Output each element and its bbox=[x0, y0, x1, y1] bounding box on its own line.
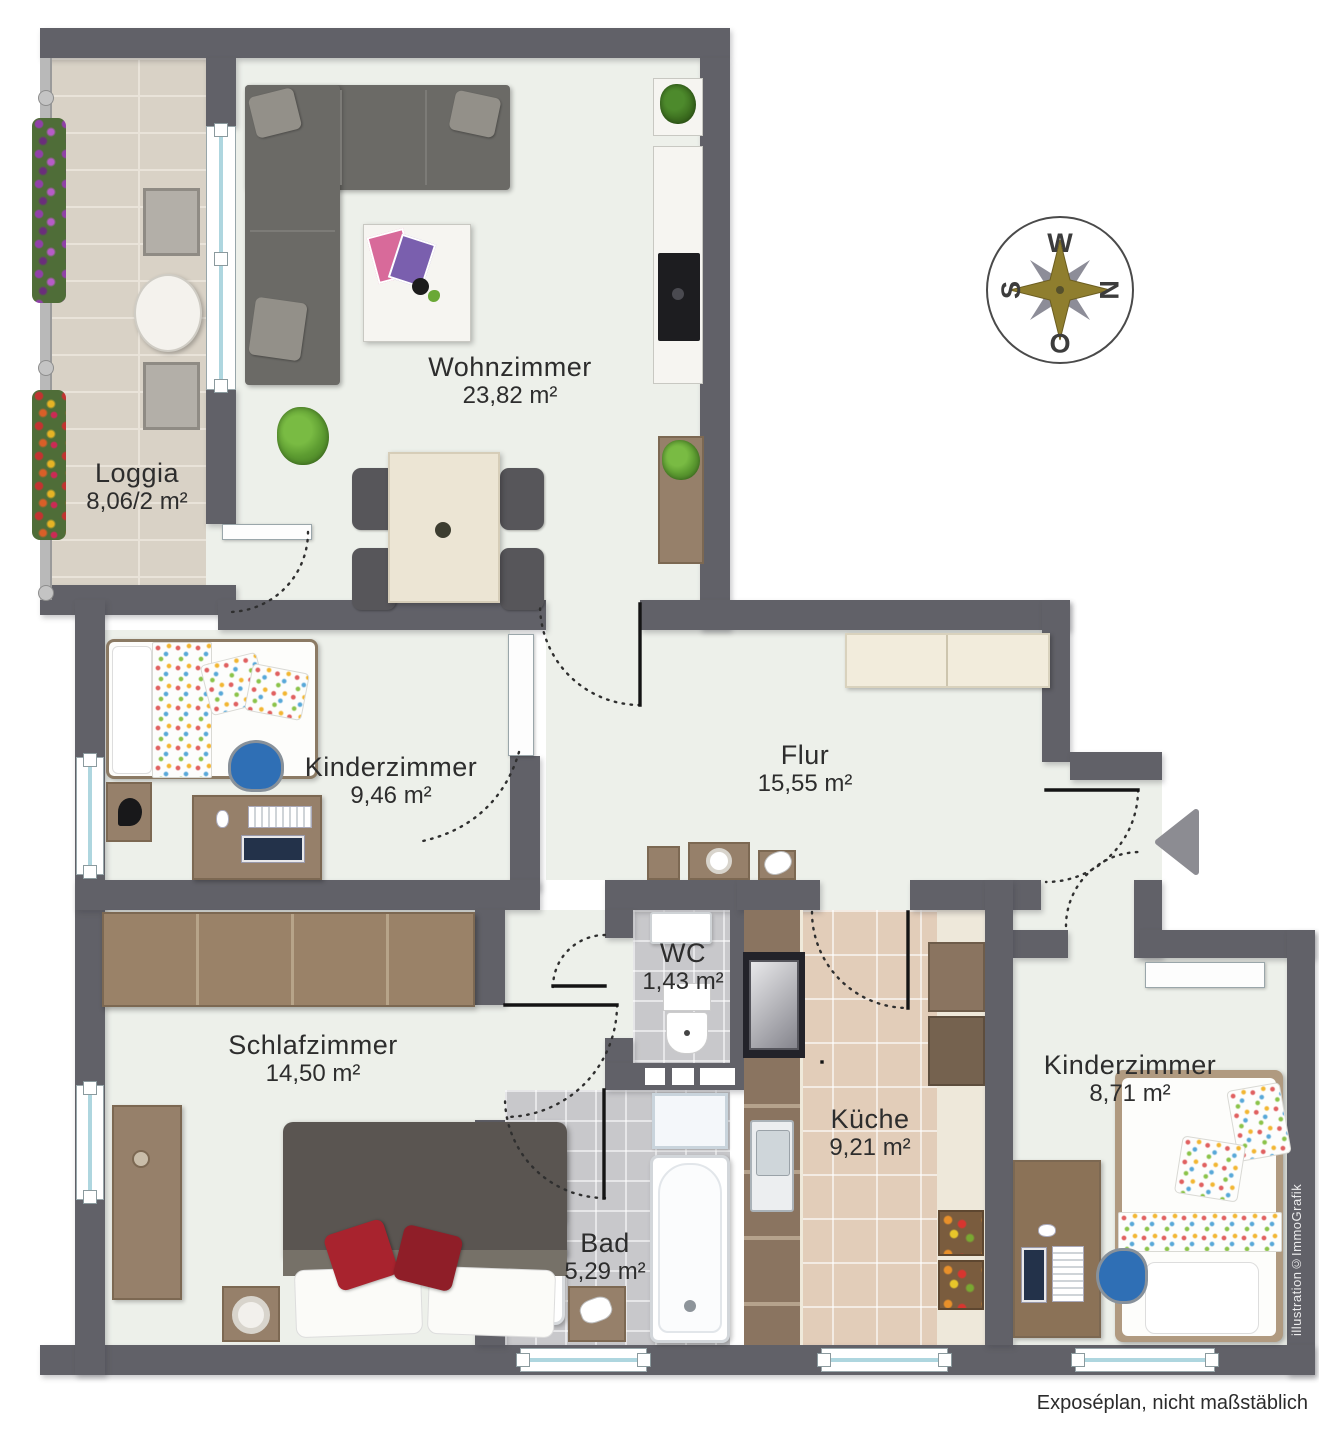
window-cap bbox=[83, 753, 97, 767]
flur-wardrobe-divider bbox=[946, 635, 948, 686]
sofa-seam bbox=[425, 90, 427, 185]
room-name: Schlafzimmer bbox=[188, 1030, 438, 1060]
kz1-bed-pillow-head bbox=[112, 646, 152, 774]
compass-letter-west: W bbox=[1047, 228, 1073, 258]
window-cap bbox=[817, 1353, 831, 1367]
compass-hub bbox=[1056, 286, 1064, 294]
room-label-loggia: Loggia 8,06/2 m² bbox=[47, 458, 227, 516]
corridor-floor bbox=[505, 910, 605, 1090]
sofa-pillow bbox=[248, 297, 308, 362]
fruit-crate-1 bbox=[938, 1210, 984, 1256]
compass-star-gray bbox=[1030, 260, 1090, 320]
wall-left-lower bbox=[75, 600, 105, 1375]
wall-wohnzimmer-right bbox=[700, 58, 730, 630]
bad-window bbox=[520, 1348, 647, 1372]
room-label-wohnzimmer: Wohnzimmer 23,82 m² bbox=[380, 352, 640, 410]
wall-top bbox=[40, 28, 730, 58]
kitchen-doorway-floor bbox=[820, 880, 910, 910]
kueche-sink-basin bbox=[756, 1130, 790, 1176]
wall-loggia-bottom bbox=[40, 585, 236, 615]
illustration-credit: illustration©ImmoGrafik bbox=[1289, 1145, 1313, 1375]
window-cap bbox=[83, 865, 97, 879]
room-area: 5,29 m² bbox=[530, 1258, 680, 1286]
wall-wc-left-a bbox=[605, 910, 633, 938]
room-area: 14,50 m² bbox=[188, 1060, 438, 1088]
window-cap bbox=[938, 1353, 952, 1367]
radiator-panel-2 bbox=[672, 1068, 694, 1085]
window-cap bbox=[214, 252, 228, 266]
room-label-schlafzimmer: Schlafzimmer 14,50 m² bbox=[188, 1030, 438, 1088]
room-area: 15,55 m² bbox=[705, 770, 905, 798]
room-name: Bad bbox=[530, 1228, 680, 1258]
room-name: WC bbox=[608, 938, 758, 968]
kz2-pillow-2 bbox=[1174, 1135, 1246, 1202]
sz-wardrobe bbox=[102, 912, 475, 1007]
kz2-mouse bbox=[1038, 1224, 1056, 1237]
footer-note: Exposéplan, nicht maßstäblich bbox=[900, 1392, 1308, 1415]
room-area: 8,71 m² bbox=[1005, 1080, 1255, 1108]
window-cap bbox=[1071, 1353, 1085, 1367]
room-label-kueche: Küche 9,21 m² bbox=[795, 1104, 945, 1162]
floorplan-canvas: Wohnzimmer 23,82 m² Loggia 8,06/2 m² Kin… bbox=[0, 0, 1319, 1440]
window-cap bbox=[516, 1353, 530, 1367]
window-cap bbox=[1205, 1353, 1219, 1367]
window-cap bbox=[214, 379, 228, 393]
kueche-tall-cabinet-1 bbox=[928, 942, 985, 1012]
wall-schlafzimmer-top bbox=[75, 880, 540, 910]
room-label-bad: Bad 5,29 m² bbox=[530, 1228, 680, 1286]
railing-knob bbox=[38, 585, 54, 601]
room-area: 23,82 m² bbox=[380, 382, 640, 410]
wall-entry-nub bbox=[1070, 752, 1162, 780]
wall-mid-right bbox=[640, 600, 1070, 630]
living-room-plant bbox=[277, 407, 329, 465]
room-name: Kinderzimmer bbox=[1005, 1050, 1255, 1080]
kueche-window bbox=[821, 1348, 948, 1372]
kz1-monitor bbox=[242, 836, 304, 862]
kinderzimmer2-window bbox=[1075, 1348, 1215, 1372]
compass-circle bbox=[987, 217, 1133, 363]
schlafzimmer-window bbox=[76, 1085, 104, 1200]
compass-star-gold bbox=[1010, 240, 1110, 340]
schlafzimmer-doorway-floor bbox=[475, 1005, 505, 1120]
sofa-seam bbox=[340, 90, 342, 185]
fruit-crate-2 bbox=[938, 1260, 984, 1310]
dining-chair bbox=[500, 468, 544, 530]
bad-appliance bbox=[652, 1093, 728, 1149]
wall-kueche-right bbox=[985, 880, 1013, 1345]
dining-table-bowl bbox=[435, 522, 451, 538]
kinderzimmer2-door-leaf bbox=[1145, 962, 1265, 988]
kueche-tall-cabinet-2 bbox=[928, 1016, 985, 1086]
kz1-duvet-strip bbox=[152, 642, 212, 778]
radiator-panel-1 bbox=[645, 1068, 665, 1085]
kinderzimmer1-door-leaf bbox=[508, 634, 534, 756]
loggia-table bbox=[134, 274, 202, 352]
loggia-door-leaf bbox=[222, 524, 312, 540]
bathtub-drain bbox=[684, 1300, 696, 1312]
room-name: Küche bbox=[795, 1104, 945, 1134]
kz2-foot-pillow bbox=[1145, 1262, 1259, 1334]
room-label-flur: Flur 15,55 m² bbox=[705, 740, 905, 798]
room-area: 9,21 m² bbox=[795, 1134, 945, 1162]
room-area: 8,06/2 m² bbox=[47, 488, 227, 516]
room-name: Kinderzimmer bbox=[266, 752, 516, 782]
sz-lamp-left bbox=[232, 1296, 270, 1334]
window-cap bbox=[214, 123, 228, 137]
wall-divider-top bbox=[206, 58, 236, 126]
wall-kueche-top-right bbox=[910, 880, 1041, 910]
kz2-keyboard bbox=[1052, 1246, 1084, 1302]
kz2-desk-chair bbox=[1096, 1248, 1148, 1304]
compass-letter-south: S bbox=[996, 281, 1026, 299]
wall-kz2-top-left bbox=[1013, 930, 1068, 958]
wall-kueche-top-left bbox=[737, 880, 820, 910]
kz2-duvet-band bbox=[1118, 1212, 1282, 1252]
sz-dresser bbox=[112, 1105, 182, 1300]
window-cap bbox=[83, 1081, 97, 1095]
dining-chair bbox=[500, 548, 544, 610]
radiator-panel-3 bbox=[700, 1068, 735, 1085]
room-name: Flur bbox=[705, 740, 905, 770]
washer-drum bbox=[706, 848, 732, 874]
kz2-monitor bbox=[1022, 1248, 1046, 1302]
window-cap bbox=[83, 1190, 97, 1204]
window-cap bbox=[637, 1353, 651, 1367]
sideboard-plant bbox=[662, 440, 700, 480]
room-area: 9,46 m² bbox=[266, 782, 516, 810]
kz1-mouse bbox=[216, 810, 229, 828]
kinderzimmer1-window bbox=[76, 757, 104, 875]
sofa-seam bbox=[250, 230, 335, 232]
loggia-chair-2 bbox=[143, 362, 200, 430]
sz-dresser-knob bbox=[132, 1150, 150, 1168]
flur-floor-door-gap bbox=[546, 600, 640, 630]
room-label-kinderzimmer1: Kinderzimmer 9,46 m² bbox=[266, 752, 516, 810]
entry-doorway-floor bbox=[1134, 780, 1162, 880]
flur-shelf bbox=[647, 846, 680, 880]
loggia-chair-1 bbox=[143, 188, 200, 256]
flower-box-purple bbox=[32, 118, 66, 303]
room-label-wc: WC 1,43 m² bbox=[608, 938, 758, 996]
kz1-lamp bbox=[118, 798, 142, 826]
railing-knob bbox=[38, 90, 54, 106]
wall-schlafzimmer-right-a bbox=[475, 910, 505, 1005]
room-name: Loggia bbox=[47, 458, 227, 488]
wc-toilet-dot bbox=[684, 1030, 690, 1036]
room-name: Wohnzimmer bbox=[380, 352, 640, 382]
tv-stand-dot bbox=[672, 288, 684, 300]
wall-wc-left-b bbox=[605, 1038, 633, 1063]
coffee-cup bbox=[412, 278, 429, 295]
railing-knob bbox=[38, 360, 54, 376]
loggia-window bbox=[206, 126, 236, 390]
room-area: 1,43 m² bbox=[608, 968, 758, 996]
compass-letter-east: O bbox=[1049, 328, 1070, 358]
kinderzimmer2-doorway-floor bbox=[1065, 930, 1140, 958]
room-label-kinderzimmer2: Kinderzimmer 8,71 m² bbox=[1005, 1050, 1255, 1108]
entrance-arrow-icon bbox=[1158, 812, 1196, 872]
shelf-plant bbox=[660, 84, 696, 124]
compass-letter-north: N bbox=[1094, 280, 1124, 300]
